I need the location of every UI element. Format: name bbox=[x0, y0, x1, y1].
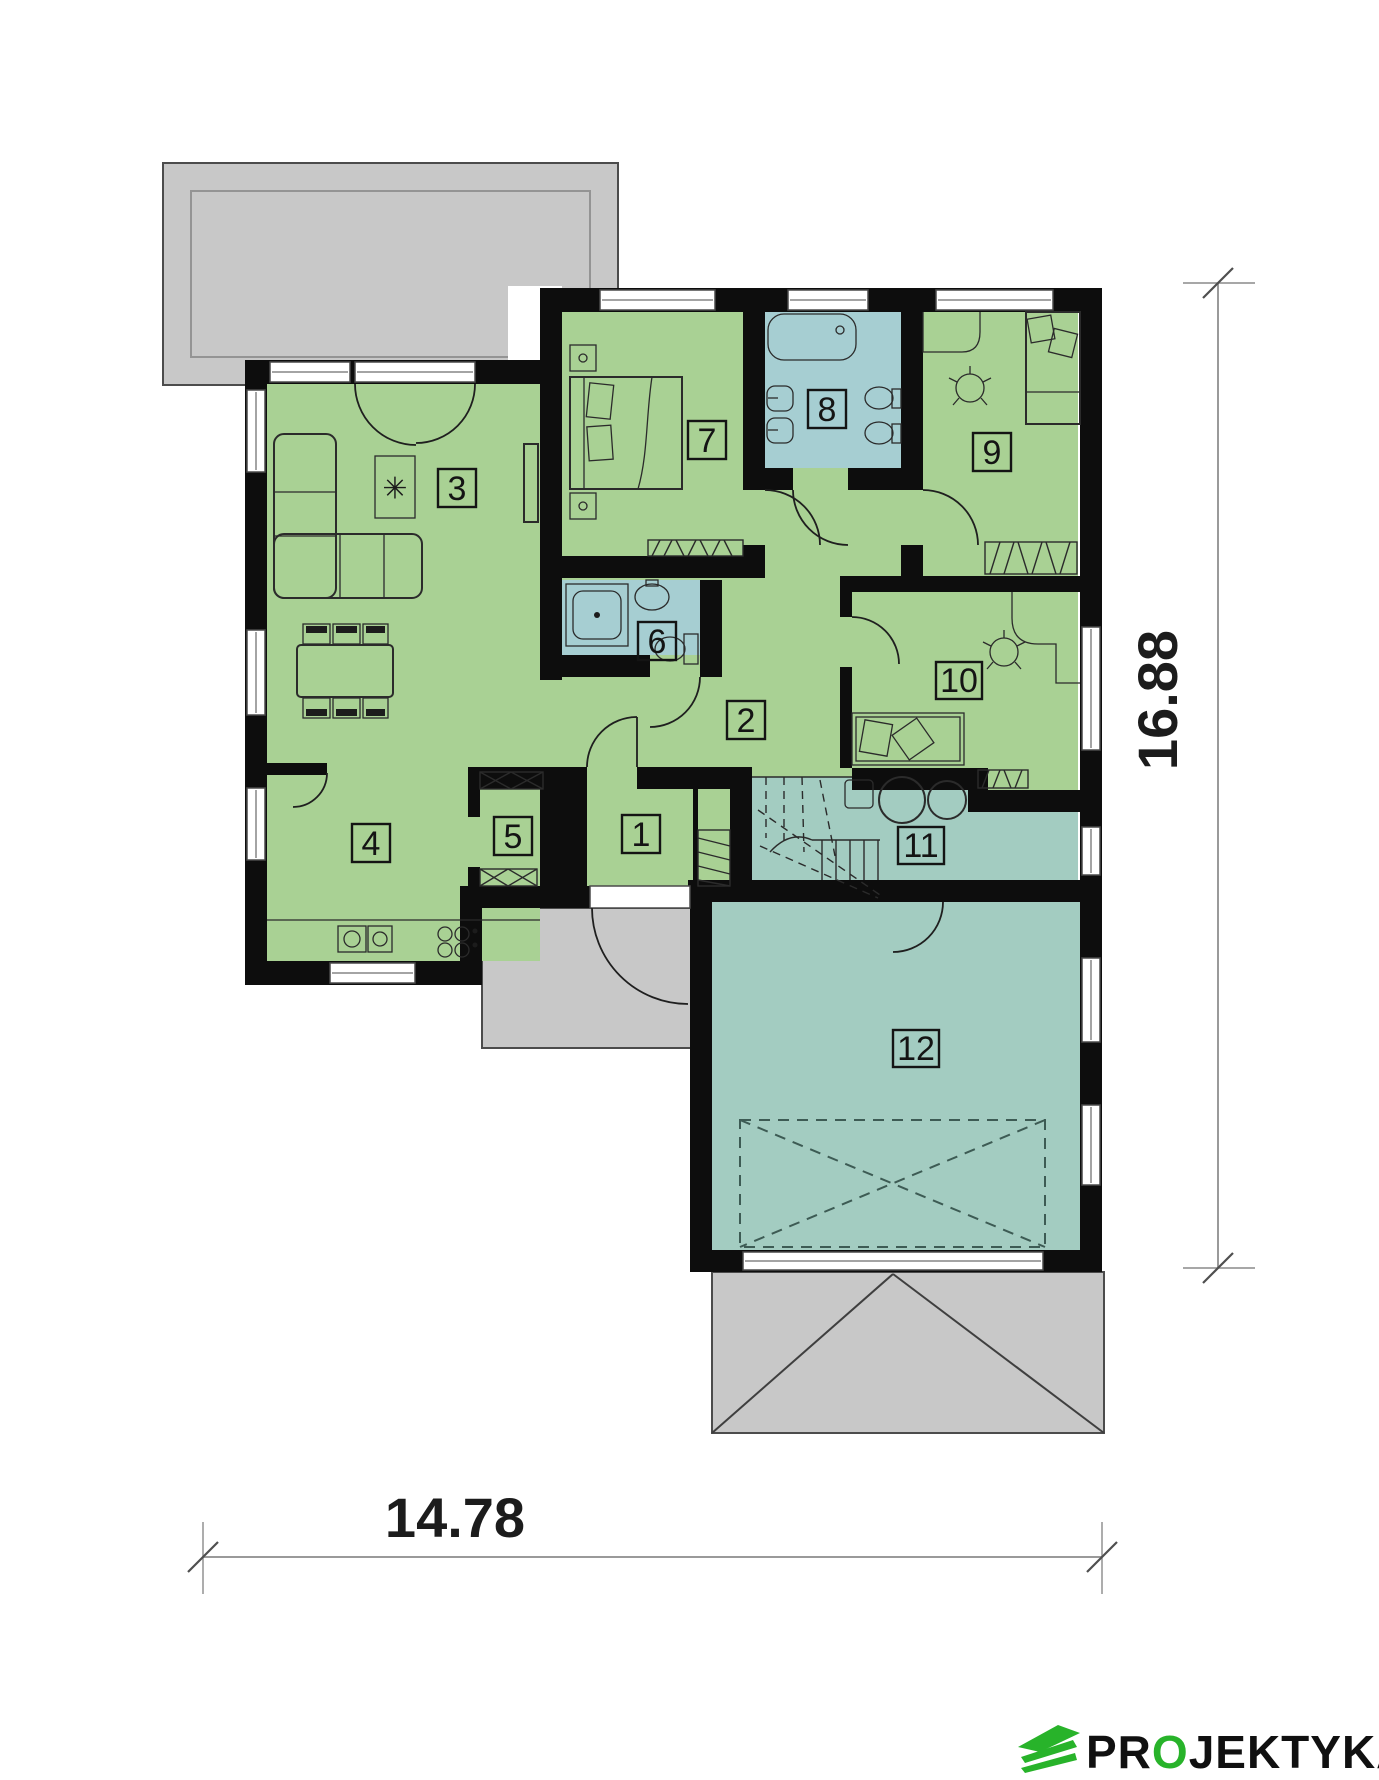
garage-fill bbox=[712, 902, 1080, 1250]
room-number: 8 bbox=[818, 391, 837, 429]
room-number: 2 bbox=[737, 702, 756, 740]
room-number: 4 bbox=[362, 825, 381, 863]
room-number: 1 bbox=[632, 816, 651, 854]
dimension-height-value: 16.88 bbox=[1126, 630, 1189, 770]
room-label-10: 10 bbox=[936, 662, 982, 700]
room-number: 6 bbox=[648, 623, 667, 661]
entry-door bbox=[590, 886, 690, 908]
room-number: 11 bbox=[903, 827, 938, 865]
room-number: 3 bbox=[448, 470, 467, 508]
room-number: 5 bbox=[504, 818, 523, 856]
room-number: 12 bbox=[897, 1030, 935, 1068]
room-label-12: 12 bbox=[893, 1030, 939, 1068]
room-label-11: 11 bbox=[898, 827, 944, 865]
room-number: 7 bbox=[698, 422, 717, 460]
passage-fill bbox=[540, 680, 562, 767]
logo-house-icon bbox=[1018, 1725, 1080, 1773]
driveway bbox=[712, 1272, 1104, 1433]
floor-plan-page: ✳ bbox=[0, 0, 1379, 1780]
logo: PROJEKTYKA bbox=[1018, 1725, 1379, 1778]
dimension-width: 14.78 bbox=[188, 1486, 1117, 1594]
plant-icon: ✳ bbox=[382, 473, 407, 506]
room-number: 9 bbox=[983, 434, 1002, 472]
floor-plan-drawing: ✳ bbox=[0, 0, 1379, 1780]
dimension-width-value: 14.78 bbox=[385, 1486, 525, 1549]
dimension-height: 16.88 bbox=[1126, 268, 1255, 1283]
logo-text: PROJEKTYKA bbox=[1086, 1726, 1379, 1778]
room-number: 10 bbox=[940, 662, 978, 700]
